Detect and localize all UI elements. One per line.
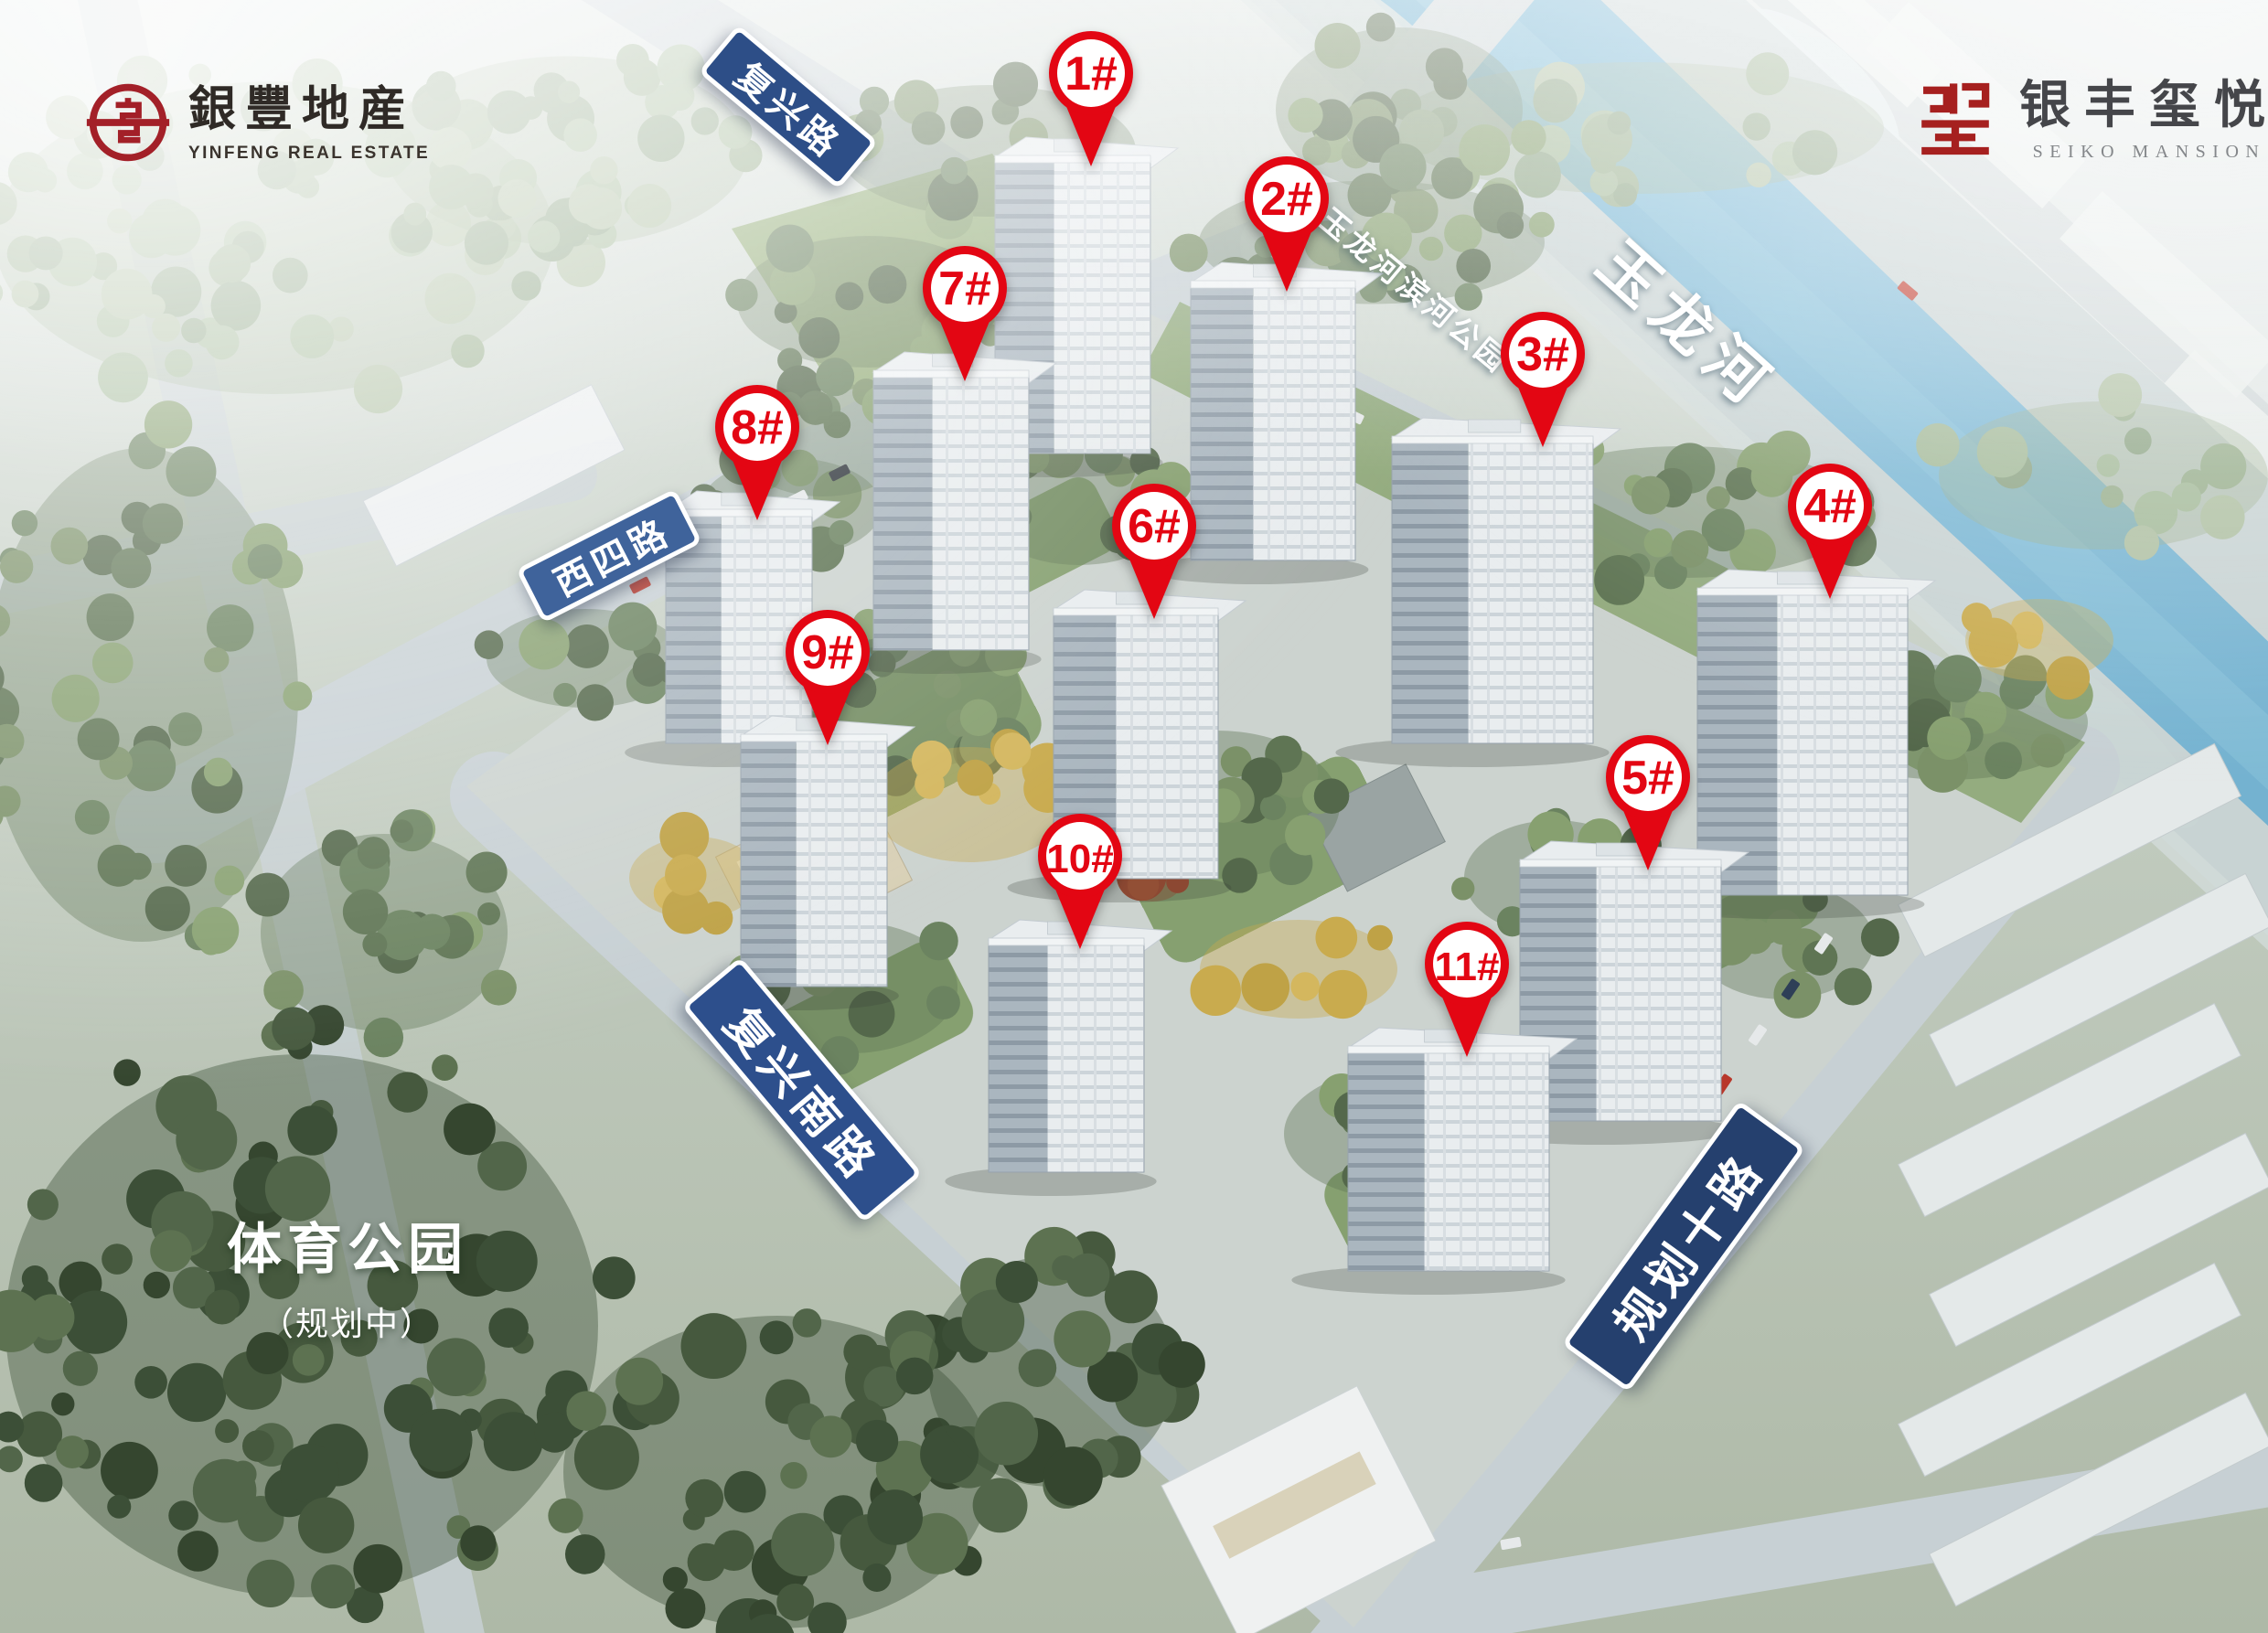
sports-park-title: 体育公园 (227, 1205, 468, 1285)
sports-park-label: 体育公园 （规划中） (227, 1205, 468, 1345)
developer-name-en: YINFENG REAL ESTATE (188, 144, 430, 164)
building-marker-label: 10# (1046, 837, 1113, 881)
building-marker-1#[interactable]: 1# (1043, 27, 1139, 170)
building-marker-10#[interactable]: 10# (1032, 810, 1128, 953)
masterplan-image: 复兴路西四路复兴南路规划十路 玉龙河 玉龙河滨河公园 体育公园 （规划中） 1#… (0, 0, 2268, 1633)
building-marker-label: 7# (938, 262, 991, 315)
building-marker-label: 11# (1435, 945, 1500, 989)
building-marker-8#[interactable]: 8# (710, 381, 805, 524)
building-marker-label: 8# (731, 401, 784, 454)
building-marker-label: 9# (801, 626, 854, 679)
developer-logo: 銀豐地産 YINFENG REAL ESTATE (84, 79, 430, 171)
project-logo: 银丰玺悦 SEIKO MANSION (1913, 77, 2268, 165)
project-name-cn: 银丰玺悦 (2019, 80, 2268, 133)
building-marker-label: 1# (1064, 48, 1118, 101)
haze-top-right (0, 0, 2268, 1633)
building-marker-3#[interactable]: 3# (1495, 308, 1590, 451)
building-marker-4#[interactable]: 4# (1782, 460, 1878, 603)
building-marker-11#[interactable]: 11# (1419, 918, 1514, 1061)
building-marker-label: 5# (1621, 752, 1674, 805)
project-name-en: SEIKO MANSION (2019, 142, 2268, 163)
building-marker-6#[interactable]: 6# (1107, 480, 1202, 623)
building-marker-label: 6# (1128, 500, 1181, 553)
building-marker-label: 2# (1260, 173, 1313, 226)
project-seal-icon (1913, 77, 1997, 165)
developer-seal-icon (84, 79, 172, 171)
sports-park-note: （规划中） (227, 1297, 468, 1345)
building-marker-label: 4# (1803, 480, 1856, 533)
backdrop-svg (0, 0, 2268, 1633)
building-marker-7#[interactable]: 7# (917, 242, 1012, 385)
building-marker-2#[interactable]: 2# (1239, 153, 1334, 295)
building-marker-5#[interactable]: 5# (1600, 731, 1696, 874)
building-marker-label: 3# (1516, 328, 1569, 381)
building-marker-9#[interactable]: 9# (780, 606, 875, 749)
developer-name-cn: 銀豐地産 (188, 86, 430, 136)
